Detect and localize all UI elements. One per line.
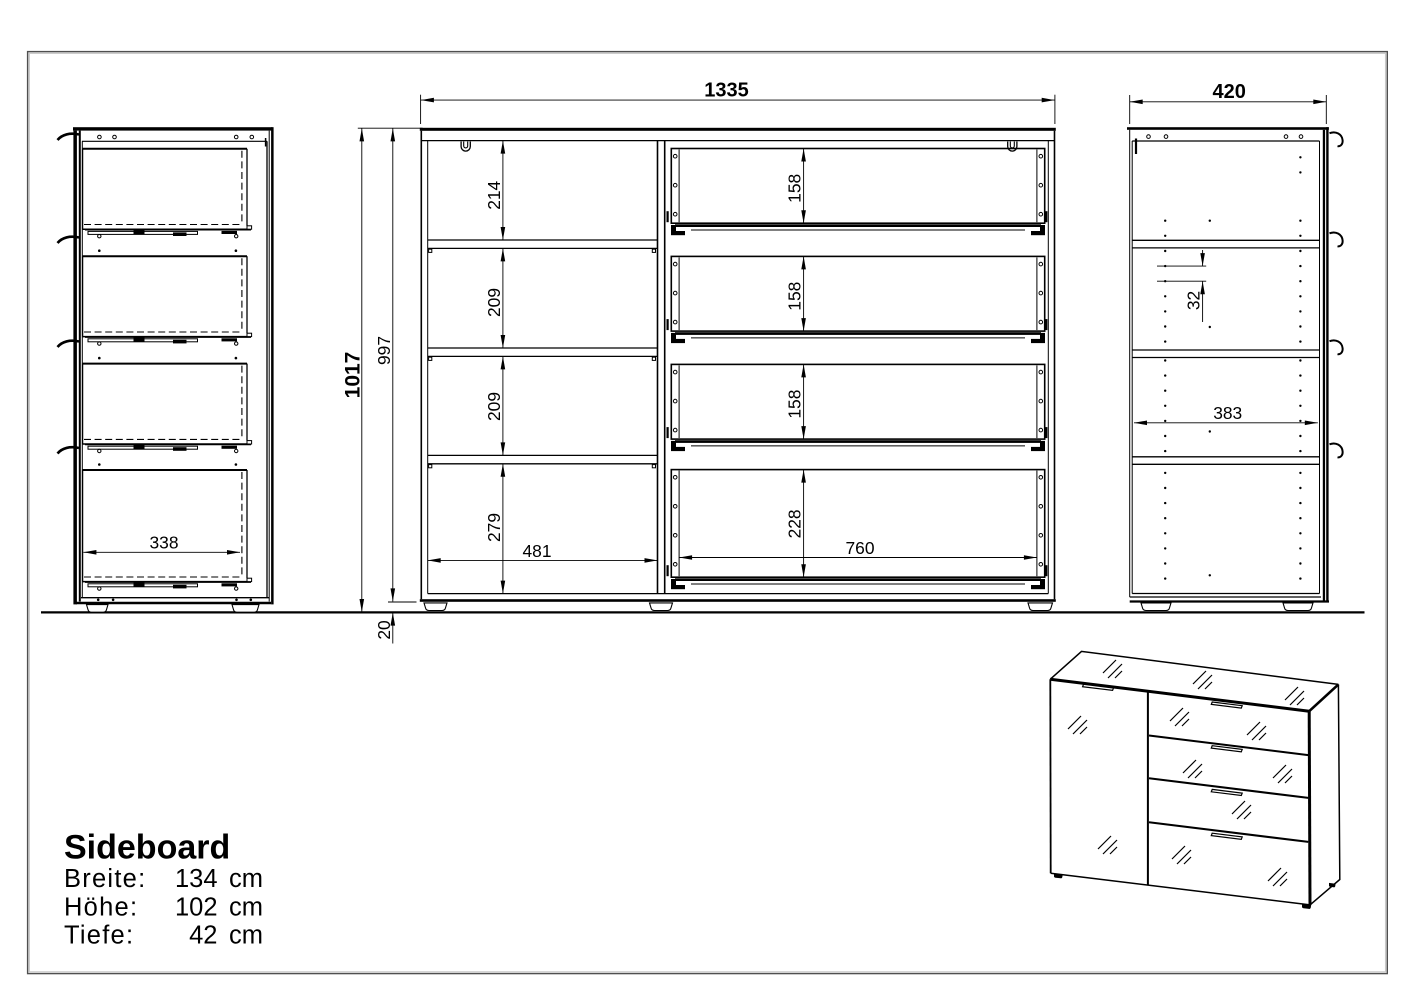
svg-text:Sideboard: Sideboard (64, 829, 230, 867)
svg-text:214: 214 (484, 180, 504, 209)
svg-text:209: 209 (484, 392, 504, 421)
svg-text:1017: 1017 (342, 352, 365, 399)
svg-text:1335: 1335 (704, 80, 749, 102)
svg-text:32: 32 (1184, 291, 1204, 310)
svg-text:cm: cm (229, 865, 263, 893)
svg-text:Breite:: Breite: (64, 865, 146, 893)
svg-text:209: 209 (484, 288, 504, 317)
svg-text:cm: cm (229, 922, 263, 950)
svg-text:102: 102 (175, 894, 218, 922)
svg-text:158: 158 (785, 390, 805, 419)
svg-text:158: 158 (785, 174, 805, 203)
svg-text:997: 997 (374, 336, 394, 365)
svg-text:481: 481 (522, 541, 551, 561)
svg-text:134: 134 (175, 865, 218, 893)
svg-text:279: 279 (484, 513, 504, 542)
svg-text:383: 383 (1213, 403, 1242, 423)
svg-text:Tiefe:: Tiefe: (64, 922, 134, 950)
svg-text:338: 338 (149, 533, 178, 553)
svg-text:760: 760 (845, 538, 874, 558)
svg-text:420: 420 (1213, 81, 1246, 103)
svg-text:cm: cm (229, 894, 263, 922)
svg-text:42: 42 (189, 922, 217, 950)
svg-text:20: 20 (374, 620, 394, 639)
svg-text:228: 228 (785, 509, 805, 538)
svg-text:158: 158 (785, 282, 805, 311)
svg-text:Höhe:: Höhe: (64, 894, 138, 922)
